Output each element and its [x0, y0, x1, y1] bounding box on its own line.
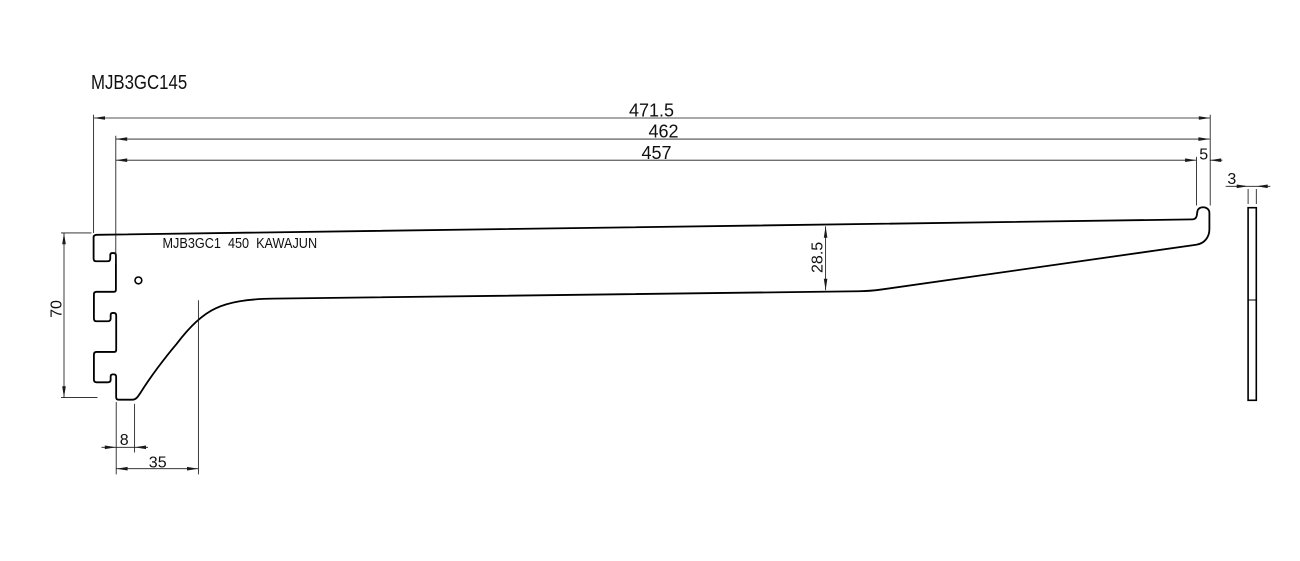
- svg-text:3: 3: [1227, 171, 1236, 188]
- svg-text:5: 5: [1199, 146, 1208, 163]
- svg-text:70: 70: [49, 300, 66, 318]
- svg-text:MJB3GC145: MJB3GC145: [91, 70, 187, 93]
- svg-text:8: 8: [120, 432, 129, 449]
- svg-text:35: 35: [149, 454, 167, 471]
- svg-text:462: 462: [648, 122, 678, 142]
- svg-text:457: 457: [641, 143, 671, 163]
- svg-text:471.5: 471.5: [629, 100, 674, 120]
- svg-text:28.5: 28.5: [810, 242, 827, 273]
- svg-text:MJB3GC1 450 KAWAJUN: MJB3GC1 450 KAWAJUN: [163, 234, 318, 251]
